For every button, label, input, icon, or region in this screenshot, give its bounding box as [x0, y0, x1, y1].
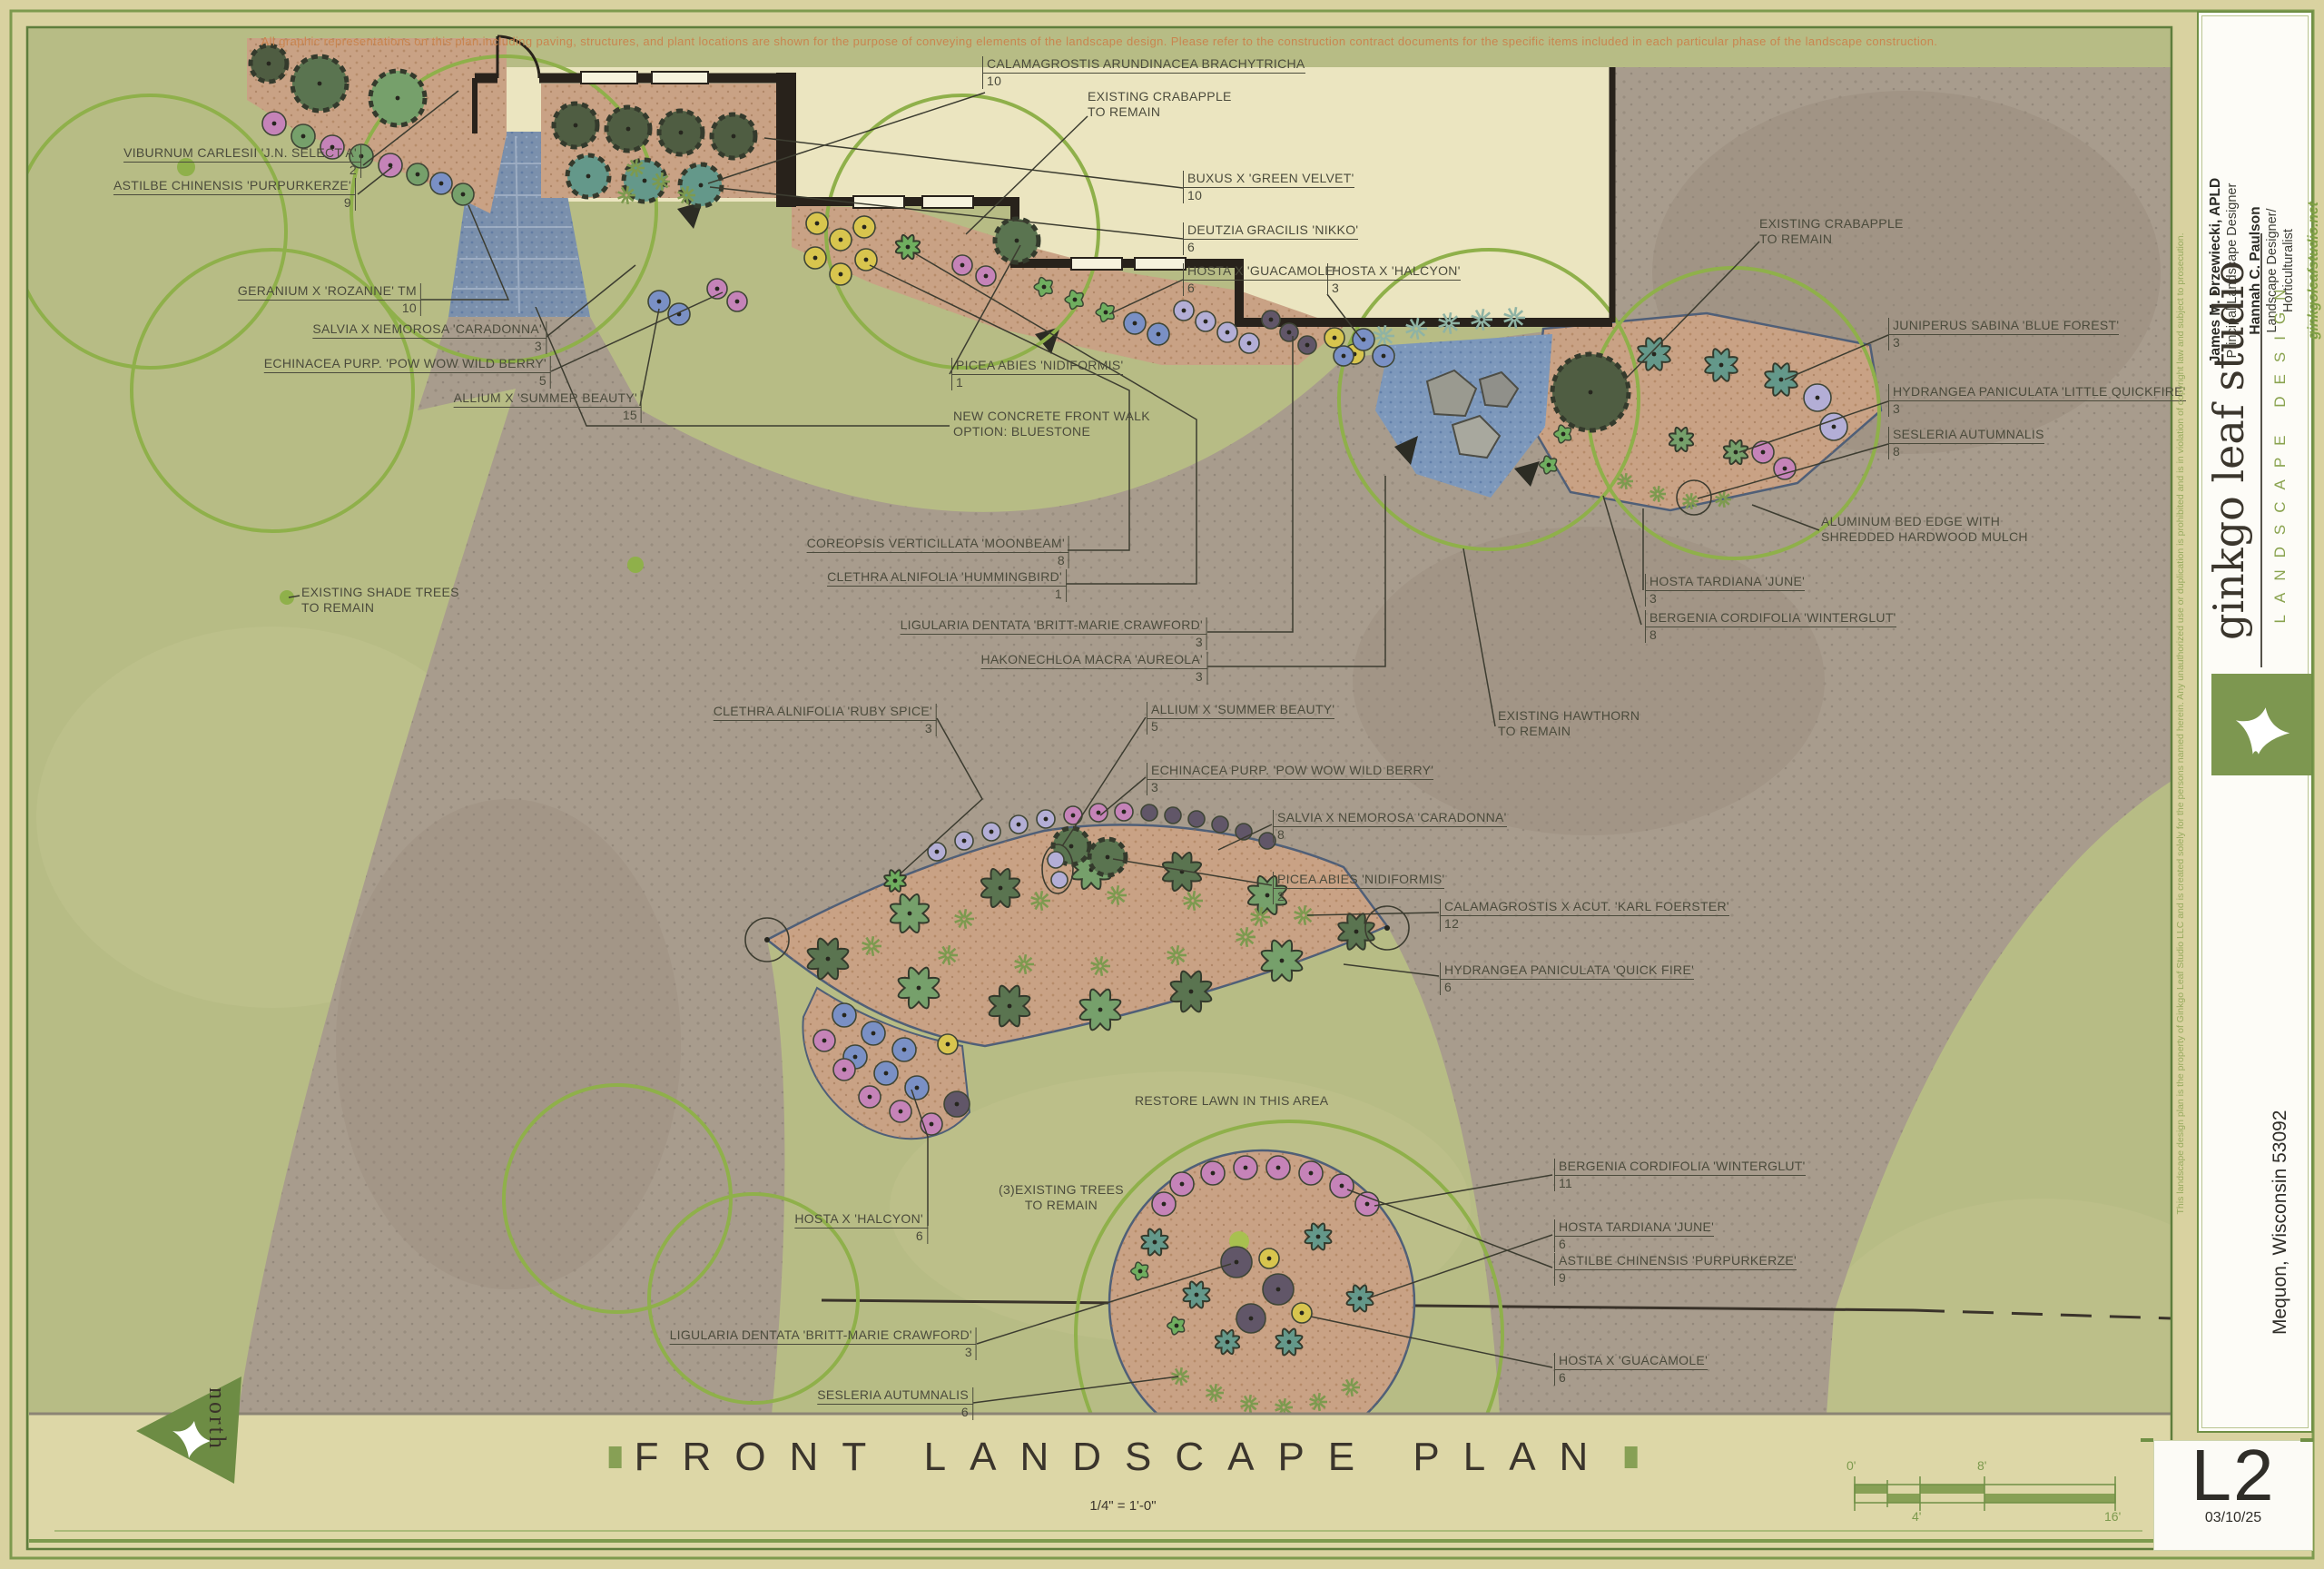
- title-accent-square: [609, 1446, 622, 1468]
- scale-tick-label: 0': [1846, 1458, 1856, 1473]
- note-label: EXISTING CRABAPPLE TO REMAIN: [1759, 216, 1904, 247]
- plant-label: BERGENIA CORDIFOLIA 'WINTERGLUT'11: [1554, 1159, 1806, 1191]
- plant-label: ALLIUM X 'SUMMER BEAUTY'5: [1147, 702, 1334, 735]
- plant-label: CLETHRA ALNIFOLIA 'HUMMINGBIRD'1: [827, 569, 1067, 602]
- plan-scale: 1/4" = 1'-0": [1089, 1498, 1156, 1514]
- plant-label: CLETHRA ALNIFOLIA 'RUBY SPICE'3: [714, 704, 937, 736]
- note-label: RESTORE LAWN IN THIS AREA: [1135, 1093, 1328, 1109]
- scale-tick-label: 16': [2104, 1509, 2121, 1524]
- plant-label: SALVIA X NEMOROSA 'CARADONNA'8: [1273, 810, 1507, 843]
- plant-label: CALAMAGROSTIS X ACUT. 'KARL FOERSTER'12: [1440, 899, 1729, 932]
- plant-symbol: [1051, 872, 1068, 888]
- note-label: EXISTING SHADE TREES TO REMAIN: [301, 585, 459, 616]
- studio-name: ginkgo leaf studio: [2204, 233, 2262, 667]
- plant-label: HAKONECHLOA MACRA 'AUREOLA'3: [980, 652, 1207, 685]
- studio-tagline: LANDSCAPE DESIGN: [2262, 233, 2290, 667]
- title-band: [29, 1413, 2171, 1549]
- note-label: ALUMINUM BED EDGE WITH SHREDDED HARDWOOD…: [1821, 514, 2028, 545]
- plant-label: VIBURNUM CARLESII 'J.N. SELECT A'2: [123, 145, 361, 178]
- plant-label: HYDRANGEA PANICULATA 'QUICK FIRE'6: [1440, 962, 1694, 995]
- note-label: EXISTING HAWTHORN TO REMAIN: [1498, 708, 1640, 739]
- plant-label: GERANIUM X 'ROZANNE' TM10: [238, 283, 421, 316]
- plan-title: FRONT LANDSCAPE PLAN: [609, 1435, 1638, 1480]
- plant-label: HOSTA X 'GUACAMOLE'6: [1183, 263, 1336, 296]
- plant-label: ECHINACEA PURP. 'POW WOW WILD BERRY'5: [264, 356, 551, 389]
- plant-label: DEUTZIA GRACILIS 'NIKKO'6: [1183, 222, 1358, 255]
- note-label: EXISTING CRABAPPLE TO REMAIN: [1088, 89, 1232, 120]
- project-location: Mequon, Wisconsin 53092: [2270, 1026, 2291, 1335]
- plant-label: LIGULARIA DENTATA 'BRITT-MARIE CRAWFORD'…: [901, 617, 1207, 650]
- plant-symbol: [1141, 804, 1157, 821]
- studio-brand: ginkgo leaf studio LANDSCAPE DESIGN: [2204, 233, 2290, 667]
- plant-label: HOSTA X 'GUACAMOLE'6: [1554, 1353, 1708, 1386]
- plant-label: BERGENIA CORDIFOLIA 'WINTERGLUT'8: [1645, 610, 1896, 643]
- plant-label: PICEA ABIES 'NIDIFORMIS'2: [1273, 872, 1444, 904]
- plant-label: SESLERIA AUTUMNALIS8: [1888, 427, 2044, 459]
- copyright-notice: This landscape design plan is the proper…: [2175, 38, 2186, 1409]
- landscape-plan-sheet: All graphic representations on this plan…: [0, 0, 2324, 1569]
- disclaimer-text: All graphic representations on this plan…: [237, 35, 1962, 48]
- plant-label: LIGULARIA DENTATA 'BRITT-MARIE CRAWFORD'…: [670, 1327, 977, 1360]
- plant-symbol: [1188, 811, 1205, 827]
- plant-label: COREOPSIS VERTICILLATA 'MOONBEAM'8: [807, 536, 1069, 568]
- website-link[interactable]: ginkgoleafstudio.net: [2306, 98, 2322, 443]
- sheet-number-block: L2 03/10/25: [2153, 1440, 2313, 1551]
- plant-label: HYDRANGEA PANICULATA 'LITTLE QUICKFIRE'3: [1888, 384, 2186, 417]
- plant-label: ASTILBE CHINENSIS 'PURPURKERZE'9: [1554, 1253, 1797, 1286]
- plant-label: HOSTA X 'HALCYON'3: [1327, 263, 1461, 296]
- scale-tick-label: 4': [1912, 1509, 1921, 1524]
- plant-label: JUNIPERUS SABINA 'BLUE FOREST'3: [1888, 318, 2119, 350]
- title-accent-square: [1624, 1446, 1637, 1468]
- plant-label: HOSTA TARDIANA 'JUNE'6: [1554, 1219, 1714, 1252]
- plant-label: PICEA ABIES 'NIDIFORMIS'1: [951, 358, 1123, 390]
- ginkgo-leaf-logo-icon: [2211, 674, 2311, 775]
- sheet-number: L2: [2154, 1441, 2312, 1510]
- north-label: north: [203, 1387, 231, 1487]
- plant-label: HOSTA X 'HALCYON'6: [794, 1211, 928, 1244]
- plant-label: HOSTA TARDIANA 'JUNE'3: [1645, 574, 1805, 607]
- plant-label: ALLIUM X 'SUMMER BEAUTY'15: [454, 390, 642, 423]
- plant-label: CALAMAGROSTIS ARUNDINACEA BRACHYTRICHA10: [982, 56, 1305, 89]
- plant-label: ASTILBE CHINENSIS 'PURPURKERZE'9: [113, 178, 356, 211]
- plant-symbol: [1212, 816, 1228, 833]
- scale-tick-label: 8': [1977, 1458, 1986, 1473]
- corner-tick: [2300, 1438, 2313, 1442]
- sheet-date: 03/10/25: [2154, 1510, 2312, 1526]
- plant-label: ECHINACEA PURP. 'POW WOW WILD BERRY'3: [1147, 763, 1433, 795]
- plant-label: SESLERIA AUTUMNALIS6: [817, 1387, 973, 1420]
- note-label: NEW CONCRETE FRONT WALK OPTION: BLUESTON…: [953, 409, 1150, 439]
- plant-label: BUXUS X 'GREEN VELVET'10: [1183, 171, 1354, 203]
- corner-tick: [2141, 1438, 2153, 1442]
- plant-label: SALVIA X NEMOROSA 'CARADONNA'3: [312, 321, 547, 354]
- plant-symbol: [1048, 852, 1064, 868]
- plant-symbol: [1165, 807, 1181, 824]
- note-label: (3)EXISTING TREES TO REMAIN: [999, 1182, 1124, 1213]
